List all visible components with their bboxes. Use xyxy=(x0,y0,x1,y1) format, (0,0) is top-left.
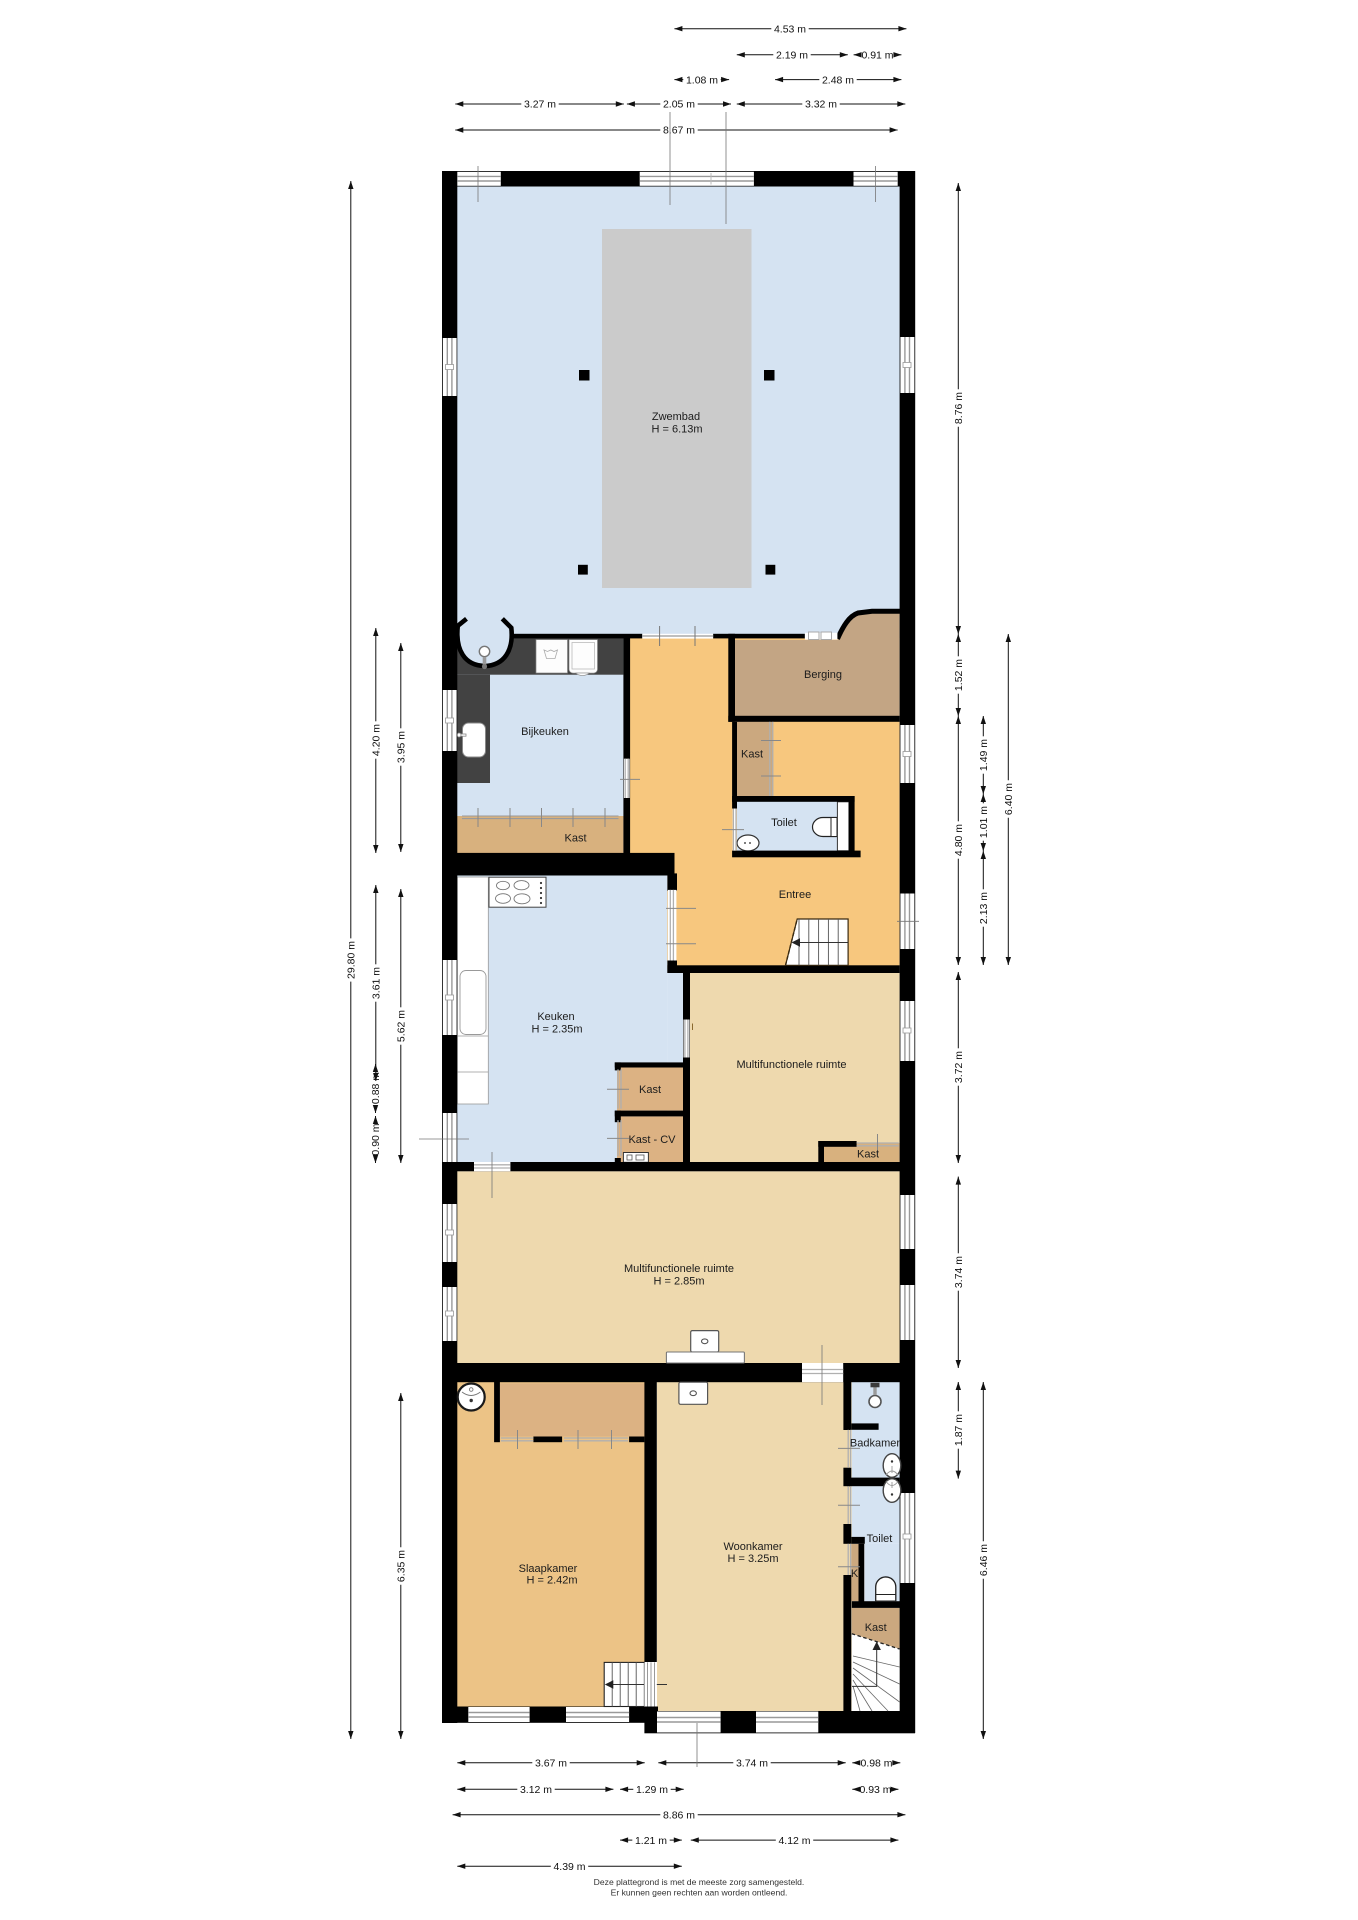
svg-text:0.98 m: 0.98 m xyxy=(860,1758,892,1770)
svg-text:4.80 m: 4.80 m xyxy=(953,824,965,856)
svg-text:1.08 m: 1.08 m xyxy=(686,74,718,86)
svg-text:2.48 m: 2.48 m xyxy=(822,74,854,86)
svg-text:Woonkamer: Woonkamer xyxy=(723,1541,782,1553)
svg-text:Kast: Kast xyxy=(857,1149,879,1161)
svg-text:3.67 m: 3.67 m xyxy=(535,1758,567,1770)
svg-text:3.32 m: 3.32 m xyxy=(805,99,837,111)
svg-text:29.80 m: 29.80 m xyxy=(346,941,358,979)
svg-text:Kast - CV: Kast - CV xyxy=(628,1134,676,1146)
svg-text:2.05 m: 2.05 m xyxy=(663,99,695,111)
svg-text:H = 2.85m: H = 2.85m xyxy=(653,1276,704,1288)
svg-text:3.72 m: 3.72 m xyxy=(953,1051,965,1083)
svg-text:0.88 m: 0.88 m xyxy=(370,1072,382,1104)
svg-text:4.39 m: 4.39 m xyxy=(553,1861,585,1873)
svg-text:6.46 m: 6.46 m xyxy=(978,1544,990,1576)
svg-text:8.67 m: 8.67 m xyxy=(663,125,695,137)
svg-text:1.29 m: 1.29 m xyxy=(636,1784,668,1796)
svg-text:1.52 m: 1.52 m xyxy=(953,659,965,691)
svg-text:2.19 m: 2.19 m xyxy=(776,50,808,62)
svg-text:Bijkeuken: Bijkeuken xyxy=(521,726,569,738)
svg-text:3.61 m: 3.61 m xyxy=(371,967,383,999)
svg-text:0.91 m: 0.91 m xyxy=(861,50,893,62)
svg-text:2.13 m: 2.13 m xyxy=(978,892,990,924)
svg-text:H = 6.13m: H = 6.13m xyxy=(651,424,702,436)
svg-text:Er kunnen geen rechten aan wor: Er kunnen geen rechten aan worden ontlee… xyxy=(611,1888,788,1898)
svg-text:4.12 m: 4.12 m xyxy=(778,1835,810,1847)
svg-text:Kast: Kast xyxy=(741,749,763,761)
svg-text:8.76 m: 8.76 m xyxy=(953,392,965,424)
svg-text:4.20 m: 4.20 m xyxy=(371,724,383,756)
svg-text:Deze plattegrond is met de mee: Deze plattegrond is met de meeste zorg s… xyxy=(594,1877,805,1887)
svg-text:3.74 m: 3.74 m xyxy=(736,1758,768,1770)
svg-text:Slaapkamer: Slaapkamer xyxy=(519,1563,578,1575)
svg-text:6.35 m: 6.35 m xyxy=(395,1550,407,1582)
svg-text:1.49 m: 1.49 m xyxy=(978,739,990,771)
svg-text:0.90 m: 0.90 m xyxy=(370,1123,382,1155)
svg-text:8.86 m: 8.86 m xyxy=(663,1809,695,1821)
svg-text:H = 2.42m: H = 2.42m xyxy=(526,1575,577,1587)
svg-text:1.87 m: 1.87 m xyxy=(953,1414,965,1446)
svg-text:3.27 m: 3.27 m xyxy=(524,99,556,111)
svg-text:Toilet: Toilet xyxy=(771,817,797,829)
svg-text:H = 3.25m: H = 3.25m xyxy=(727,1553,778,1565)
svg-text:3.95 m: 3.95 m xyxy=(396,731,408,763)
svg-text:3.12 m: 3.12 m xyxy=(520,1784,552,1796)
svg-text:Badkamer: Badkamer xyxy=(850,1438,900,1450)
svg-text:Zwembad: Zwembad xyxy=(652,411,700,423)
svg-text:1.21 m: 1.21 m xyxy=(635,1835,667,1847)
svg-text:Entree: Entree xyxy=(779,889,811,901)
svg-text:6.40 m: 6.40 m xyxy=(1003,783,1015,815)
svg-text:H = 2.35m: H = 2.35m xyxy=(531,1024,582,1036)
svg-text:3.74 m: 3.74 m xyxy=(953,1256,965,1288)
svg-text:Berging: Berging xyxy=(804,669,842,681)
svg-text:Keuken: Keuken xyxy=(537,1011,574,1023)
svg-text:Toilet: Toilet xyxy=(867,1533,893,1545)
svg-text:5.62 m: 5.62 m xyxy=(395,1010,407,1042)
svg-text:Kast: Kast xyxy=(639,1084,661,1096)
svg-text:Kast: Kast xyxy=(564,833,586,845)
svg-text:Multifunctionele ruimte: Multifunctionele ruimte xyxy=(624,1263,734,1275)
svg-text:Kast: Kast xyxy=(865,1622,887,1634)
svg-text:Multifunctionele ruimte: Multifunctionele ruimte xyxy=(736,1059,846,1071)
svg-text:K: K xyxy=(851,1568,859,1580)
svg-text:4.53 m: 4.53 m xyxy=(774,23,806,35)
svg-text:0.93 m: 0.93 m xyxy=(859,1784,891,1796)
svg-text:1.01 m: 1.01 m xyxy=(978,806,990,838)
